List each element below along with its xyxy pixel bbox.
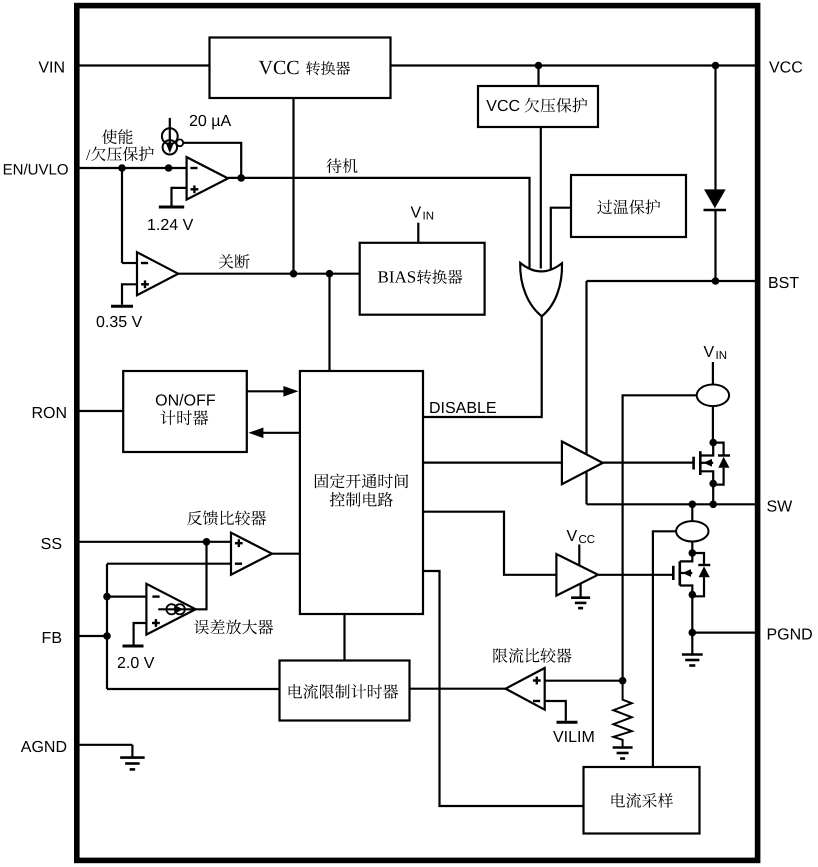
svg-text:IN: IN (716, 350, 728, 362)
svg-text:PGND: PGND (767, 627, 813, 644)
svg-text:V: V (411, 205, 422, 222)
svg-text:VIN: VIN (38, 60, 65, 77)
svg-text:/: / (86, 147, 91, 164)
svg-text:VCC: VCC (259, 57, 300, 79)
svg-text:SS: SS (41, 536, 62, 553)
svg-text:V: V (704, 344, 715, 361)
svg-text:ON/OFF: ON/OFF (155, 393, 216, 410)
svg-text:VILIM: VILIM (553, 729, 595, 746)
svg-text:CC: CC (579, 534, 596, 546)
svg-text:V: V (567, 528, 578, 545)
svg-text:RON: RON (31, 405, 67, 422)
svg-text:VCC: VCC (769, 60, 803, 77)
svg-text:IN: IN (423, 211, 435, 223)
svg-text:AGND: AGND (21, 739, 67, 756)
svg-text:1.24 V: 1.24 V (147, 217, 194, 234)
svg-text:20 µA: 20 µA (189, 113, 231, 130)
svg-text:2.0 V: 2.0 V (117, 655, 155, 672)
svg-text:BIAS: BIAS (378, 268, 417, 287)
svg-text:0.35 V: 0.35 V (96, 314, 143, 331)
svg-text:VCC: VCC (486, 98, 520, 115)
svg-text:FB: FB (42, 630, 62, 647)
svg-text:SW: SW (767, 498, 794, 515)
svg-text:BST: BST (768, 275, 799, 292)
svg-text:EN/UVLO: EN/UVLO (3, 161, 69, 178)
svg-text:DISABLE: DISABLE (429, 400, 497, 417)
